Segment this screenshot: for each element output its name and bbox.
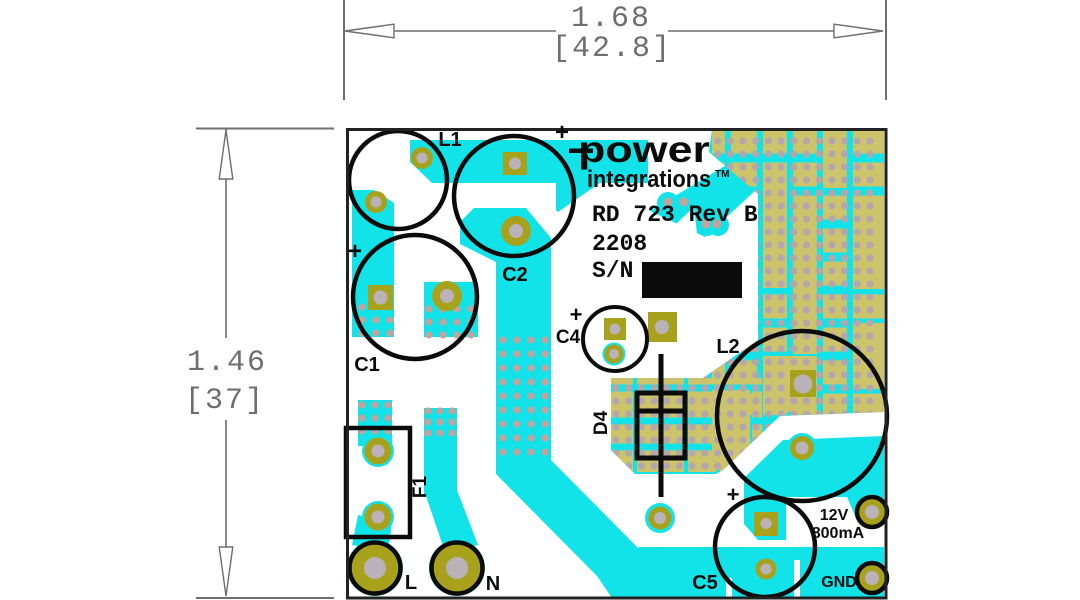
svg-text:1.68: 1.68 [571, 2, 651, 36]
svg-text:L: L [405, 572, 417, 594]
svg-text:800mA: 800mA [812, 525, 865, 542]
svg-text:1.46: 1.46 [187, 346, 267, 380]
svg-text:+: + [570, 302, 583, 327]
svg-text:C1: C1 [354, 354, 380, 376]
svg-text:+: + [727, 482, 740, 507]
svg-text:C2: C2 [502, 264, 528, 286]
svg-text:2208: 2208 [592, 231, 647, 257]
svg-text:F1: F1 [410, 475, 431, 498]
svg-text:[37]: [37] [185, 384, 265, 418]
svg-text:D4: D4 [591, 410, 612, 435]
svg-text:integrations: integrations [587, 166, 711, 193]
svg-text:TM: TM [715, 169, 729, 180]
svg-text:L2: L2 [716, 336, 739, 358]
svg-text:power: power [578, 129, 710, 170]
svg-text:C4: C4 [556, 327, 581, 348]
svg-text:RD 723 Rev B: RD 723 Rev B [592, 202, 758, 228]
svg-text:N: N [486, 573, 500, 595]
svg-text:12V: 12V [820, 507, 849, 524]
svg-text:L1: L1 [438, 129, 461, 151]
svg-text:S/N: S/N [592, 258, 633, 284]
svg-text:C5: C5 [692, 572, 718, 594]
svg-text:+: + [348, 238, 362, 265]
svg-text:GND: GND [821, 574, 857, 591]
svg-text:[42.8]: [42.8] [552, 32, 672, 66]
svg-text:+: + [555, 119, 569, 146]
